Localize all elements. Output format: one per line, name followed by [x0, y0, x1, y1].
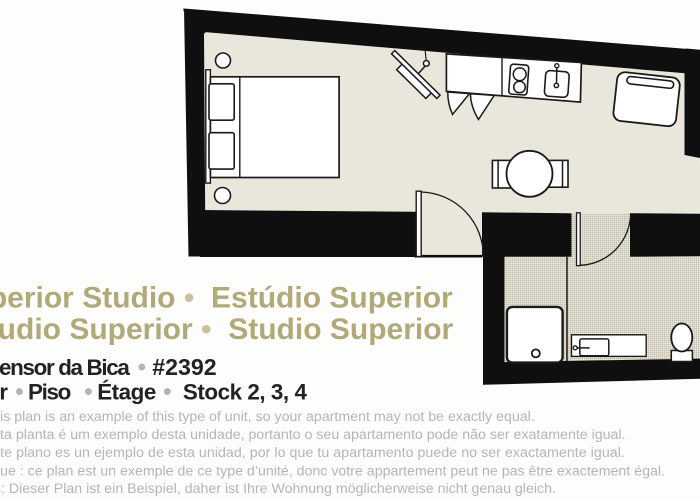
svg-text:•: • [138, 354, 146, 381]
svg-text:Stock 2, 3, 4: Stock 2, 3, 4 [183, 380, 308, 405]
svg-text:Étage: Étage [97, 380, 156, 405]
svg-text:Floor: Floor [0, 380, 8, 405]
svg-text:Esta planta é um exemplo desta: Esta planta é um exemplo desta unidade, … [0, 427, 626, 443]
svg-text:#2392: #2392 [152, 354, 216, 380]
svg-text:Este plano es un ejemplo de es: Este plano es un ejemplo de esta unidad,… [0, 445, 625, 461]
svg-text:•: • [163, 379, 171, 406]
svg-text:Ascensor da Bica: Ascensor da Bica [0, 355, 130, 380]
svg-text:Piso: Piso [28, 380, 71, 405]
svg-text:•: • [15, 379, 23, 406]
svg-text:•: • [84, 379, 92, 406]
svg-text:This plan is an example of thi: This plan is an example of this type of … [0, 409, 535, 425]
svg-text:Estudio Superior • Studio Sup: Estudio Superior • Studio Superior [0, 313, 454, 346]
svg-text:Superior Studio • Estúdio Sup: Superior Studio • Estúdio Superior [0, 282, 453, 315]
svg-text:Remarque : ce plan est un exem: Remarque : ce plan est un exemple de ce … [0, 464, 665, 480]
svg-text:Hinweis: Dieser Plan ist ein B: Hinweis: Dieser Plan ist ein Beispiel, d… [0, 481, 556, 497]
